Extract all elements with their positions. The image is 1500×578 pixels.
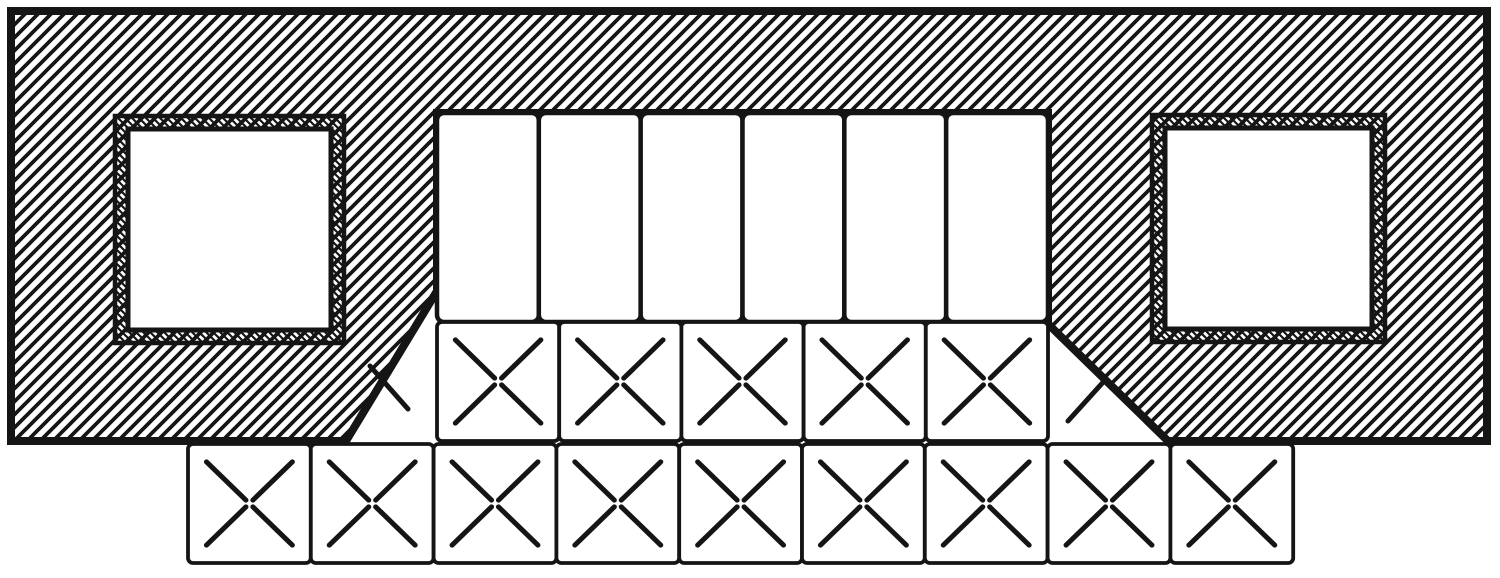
vertical-slot [539, 113, 641, 322]
recess-tile-row [437, 322, 1048, 441]
footing-tile-row [188, 444, 1293, 563]
vertical-slot [946, 113, 1048, 322]
flue-window-right [1152, 115, 1385, 342]
window-opening [1165, 128, 1372, 329]
vertical-slot [641, 113, 743, 322]
corner-triangle-stroke [1068, 379, 1106, 421]
vertical-slot [844, 113, 946, 322]
flue-window-left [115, 116, 344, 343]
vertical-slot [437, 113, 539, 322]
vertical-slot [743, 113, 845, 322]
slot-group [437, 113, 1048, 322]
window-opening [128, 129, 331, 330]
figure-svg [0, 0, 1500, 578]
engraving-figure [0, 0, 1500, 578]
